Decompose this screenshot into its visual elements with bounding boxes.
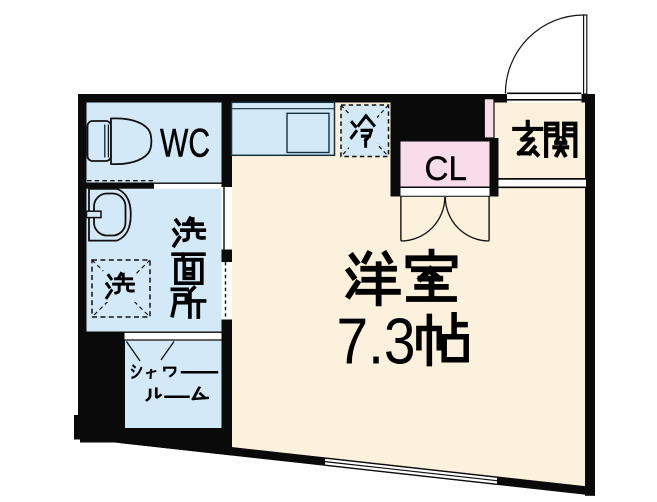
svg-text:7.3: 7.3 [337, 305, 416, 378]
svg-text:WC: WC [160, 122, 210, 166]
svg-text:CL: CL [425, 150, 468, 188]
